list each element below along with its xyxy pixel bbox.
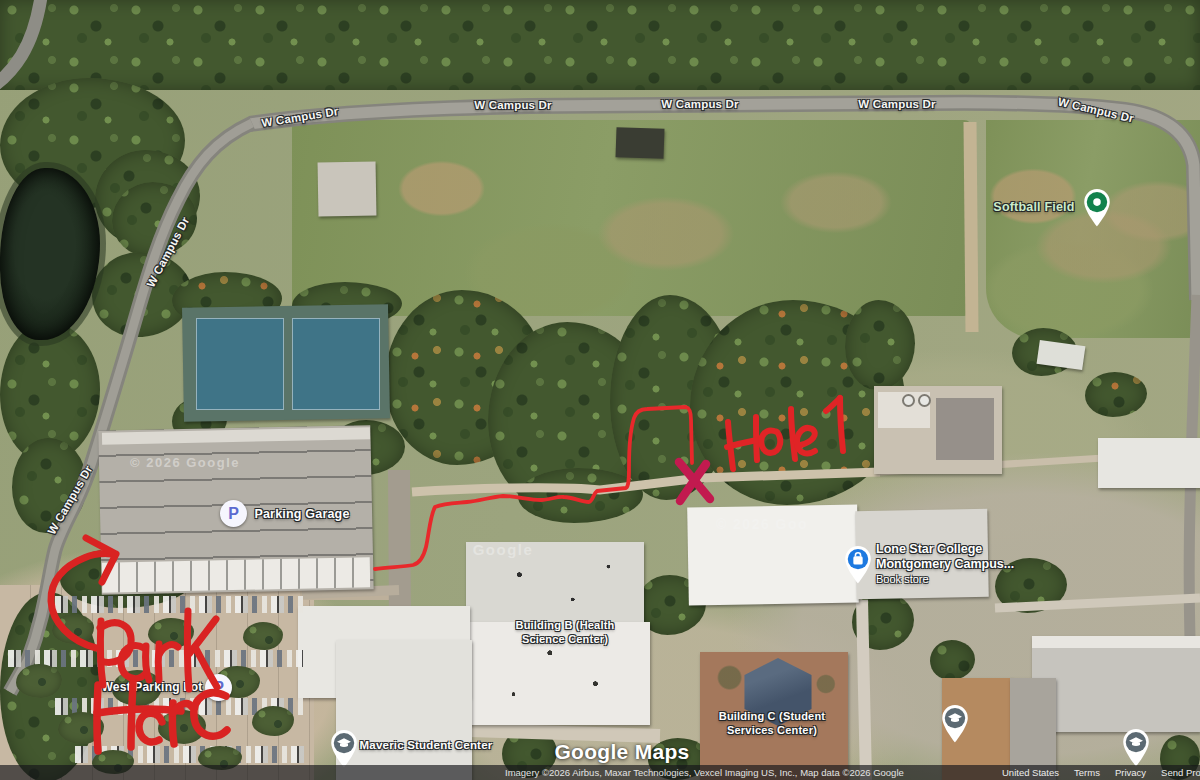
field-shed (615, 127, 664, 159)
tree-island (158, 710, 206, 744)
lsc-line2: Montgomery Campus... (876, 557, 1014, 572)
west-parking-lot-label[interactable]: West Parking Lot (102, 680, 203, 694)
parking-garage-label[interactable]: Parking Garage (254, 507, 349, 521)
link-united-states[interactable]: United States (1002, 767, 1059, 778)
water-tank (902, 394, 915, 407)
building-b-line2: Science Center) (516, 632, 615, 646)
trees (845, 300, 915, 390)
link-privacy[interactable]: Privacy (1115, 767, 1146, 778)
road-label-w-campus-dr: W Campus Dr (858, 98, 936, 110)
tree-island (243, 622, 283, 650)
imagery-watermark: © 2026 Google (130, 455, 240, 470)
tree-island (148, 618, 194, 648)
tree-island (52, 614, 94, 644)
trees (930, 640, 975, 680)
parked-cars-row (55, 596, 305, 613)
utility-roof (936, 398, 994, 460)
gray-building-edge (1032, 636, 1200, 648)
building-c-label[interactable]: Building C (Student Services Center) (719, 709, 825, 738)
trees (0, 0, 1200, 90)
building-c-line1: Building C (Student (719, 709, 825, 723)
tree-island (58, 712, 104, 744)
gray-building-roof (1032, 636, 1200, 732)
attribution-links: United States Terms Privacy Send Product… (1002, 767, 1200, 778)
parked-cars-row (8, 650, 303, 667)
road-label-w-campus-dr: W Campus Dr (474, 99, 552, 111)
attribution-bar: Imagery ©2026 Airbus, Maxar Technologies… (0, 765, 1200, 780)
tree-island (252, 706, 294, 736)
road-label-w-campus-dr: W Campus Dr (661, 98, 739, 110)
lsc-line1: Lone Star College (876, 542, 1014, 557)
satellite-map[interactable]: © 2026 Google Google © 2026 Goo W Campus… (0, 0, 1200, 780)
maveric-student-center-label[interactable]: Maveric Student Center (360, 739, 493, 751)
lone-star-college-label[interactable]: Lone Star College Montgomery Campus... B… (876, 542, 1014, 586)
bookstore-pin[interactable] (841, 545, 875, 589)
imagery-watermark: Google (473, 541, 534, 558)
building-b-line1: Building B (Health (516, 618, 615, 632)
building-b-label[interactable]: Building B (Health Science Center) (516, 618, 615, 647)
school-pin[interactable] (938, 704, 972, 748)
lsc-subtitle: Book store (876, 573, 1014, 586)
water-tank (918, 394, 931, 407)
imagery-watermark: © 2026 Goo (716, 516, 808, 532)
tennis-court (196, 318, 284, 410)
softball-field-pin[interactable] (1080, 188, 1114, 232)
west-parking-lot-icon[interactable]: P (205, 674, 232, 701)
tennis-court (292, 318, 380, 410)
link-send-product-feedback[interactable]: Send Product Feedback (1161, 767, 1200, 778)
imagery-attribution: Imagery ©2026 Airbus, Maxar Technologies… (505, 767, 904, 778)
concrete-pad (318, 161, 377, 216)
google-maps-logo: Google Maps (554, 740, 689, 764)
softball-field-label[interactable]: Softball Field (993, 200, 1074, 214)
link-terms[interactable]: Terms (1074, 767, 1100, 778)
white-building-roof (1098, 438, 1200, 488)
parking-garage-icon[interactable]: P (220, 500, 247, 527)
trees (518, 468, 643, 523)
trees (852, 592, 914, 650)
building-c-line2: Services Center) (719, 723, 825, 737)
parking-garage-deck (102, 557, 371, 593)
tree-island (16, 664, 62, 698)
trees (1085, 372, 1147, 417)
pond (0, 168, 100, 340)
